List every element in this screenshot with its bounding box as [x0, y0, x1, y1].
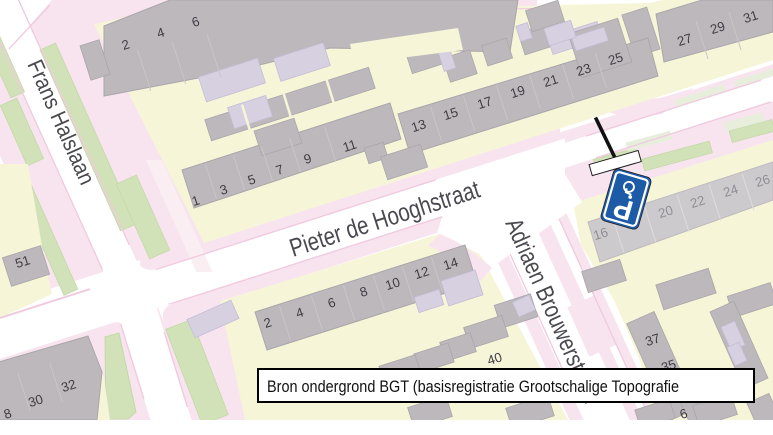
svg-text:Bron ondergrond BGT (basisregi: Bron ondergrond BGT (basisregistratie Gr…	[267, 378, 679, 396]
